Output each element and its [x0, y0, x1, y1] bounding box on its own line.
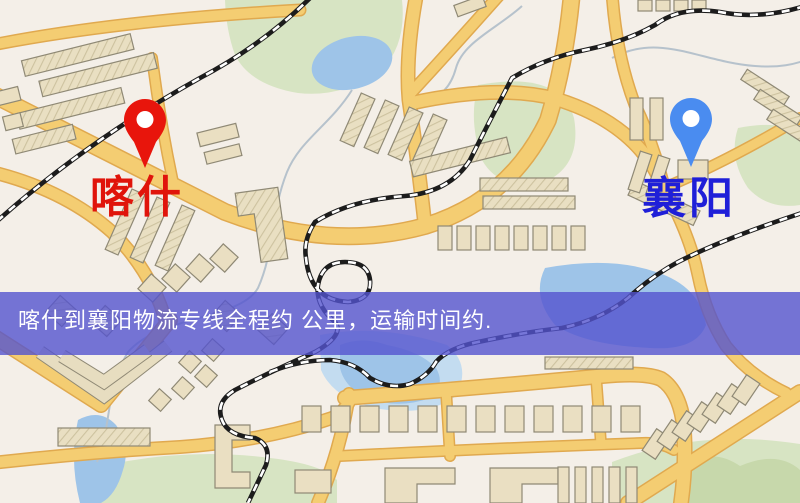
map-canvas	[0, 0, 800, 503]
marker-kashgar[interactable]	[121, 96, 169, 174]
location-pin-icon	[667, 95, 715, 173]
city-label-kashgar: 喀什	[90, 176, 184, 220]
route-info-banner: 喀什到襄阳物流专线全程约 公里，运输时间约.	[0, 292, 800, 355]
route-info-text: 喀什到襄阳物流专线全程约 公里，运输时间约.	[18, 303, 492, 335]
marker-xiangyang[interactable]	[667, 95, 715, 173]
city-label-xiangyang: 襄阳	[642, 177, 736, 221]
map-image: 喀什 襄阳 喀什到襄阳物流专线全程约 公里，运输时间约.	[0, 0, 800, 503]
location-pin-icon	[121, 96, 169, 174]
